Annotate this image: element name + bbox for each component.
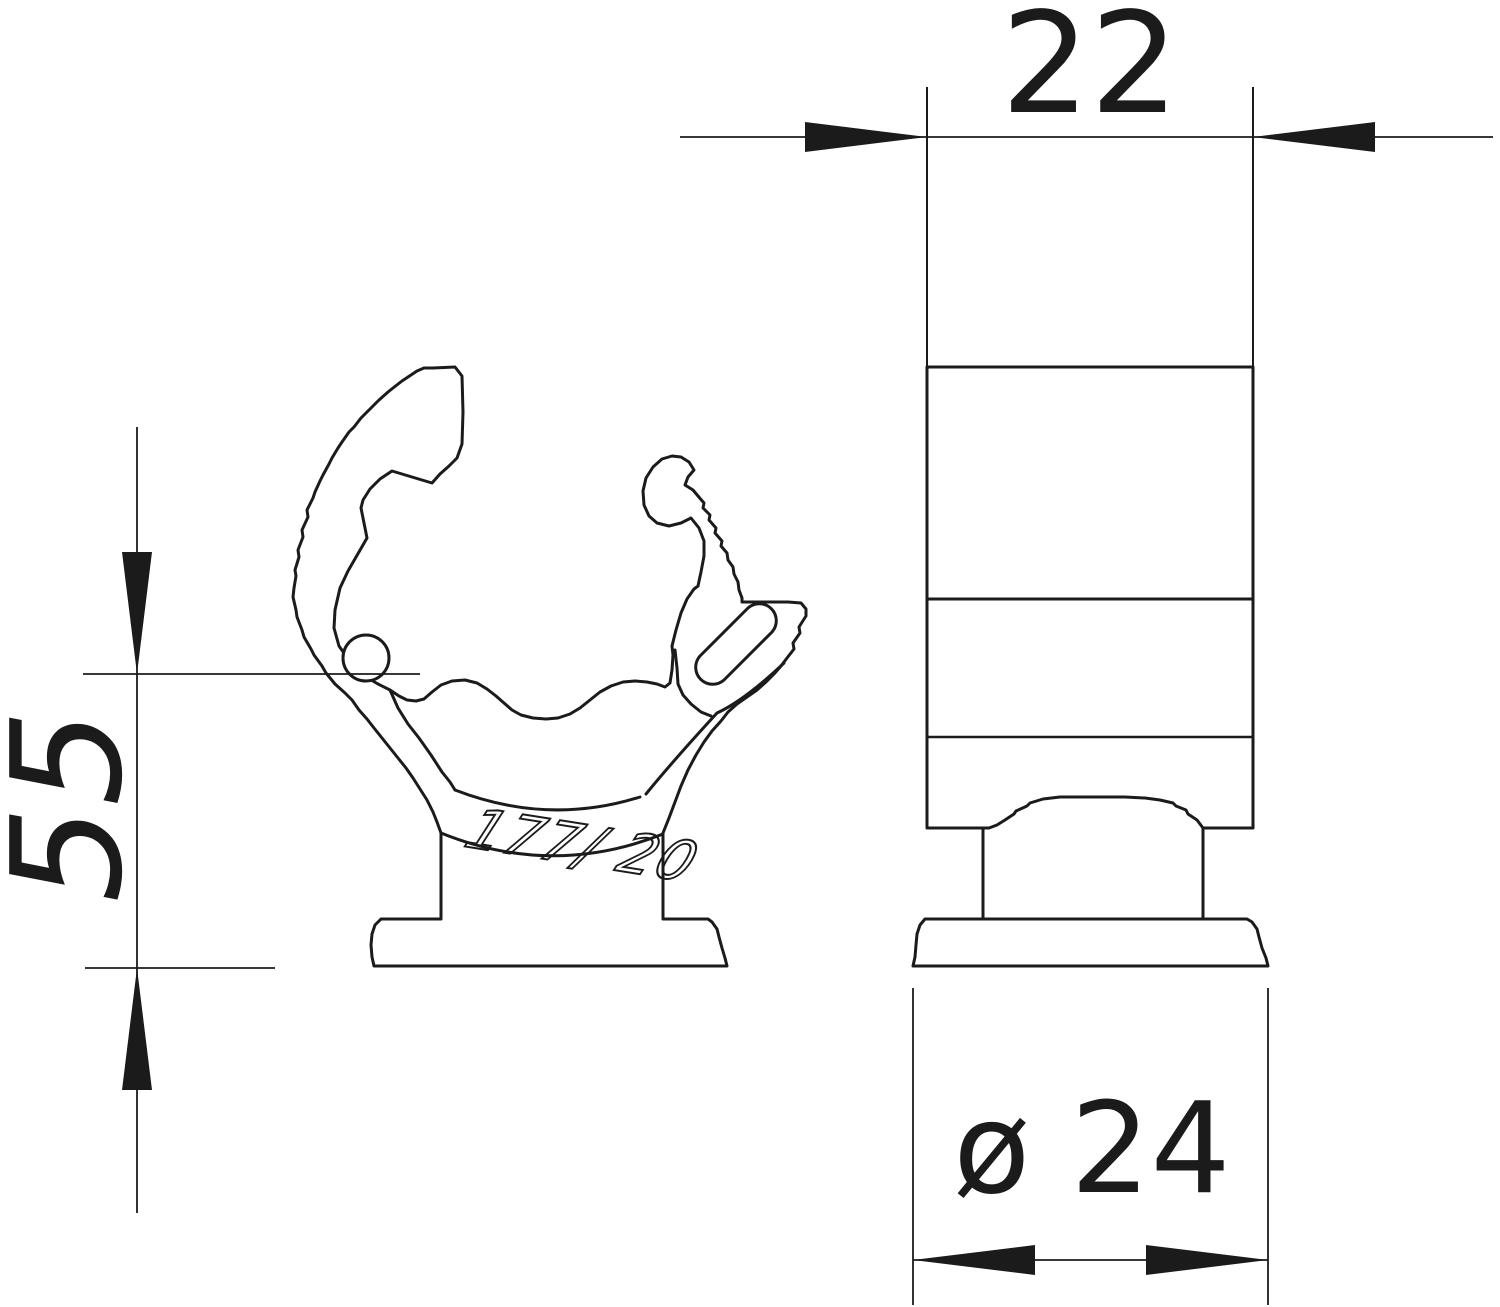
arrowhead-down-icon [122,552,152,674]
dimension-value-width: 22 [1001,0,1179,146]
dimension-value-diameter: ø 24 [953,1075,1230,1222]
arrowhead-up-icon [122,968,152,1090]
technical-drawing-page: 177/ 20 22 [0,0,1500,1307]
dimension-value-height: 55 [0,709,156,902]
dimension-width: 22 [680,0,1493,152]
front-view-clip: 177/ 20 [293,367,806,966]
arrowhead-left-icon [1253,122,1375,152]
dimension-diameter: ø 24 [913,988,1268,1305]
side-view [913,87,1268,966]
arrowhead-left-icon [913,1245,1035,1275]
arrowhead-right-icon [1146,1245,1268,1275]
arrowhead-right-icon [805,122,927,152]
side-base-foot [913,919,1268,966]
dimension-drawing-canvas: 177/ 20 22 [0,0,1500,1307]
